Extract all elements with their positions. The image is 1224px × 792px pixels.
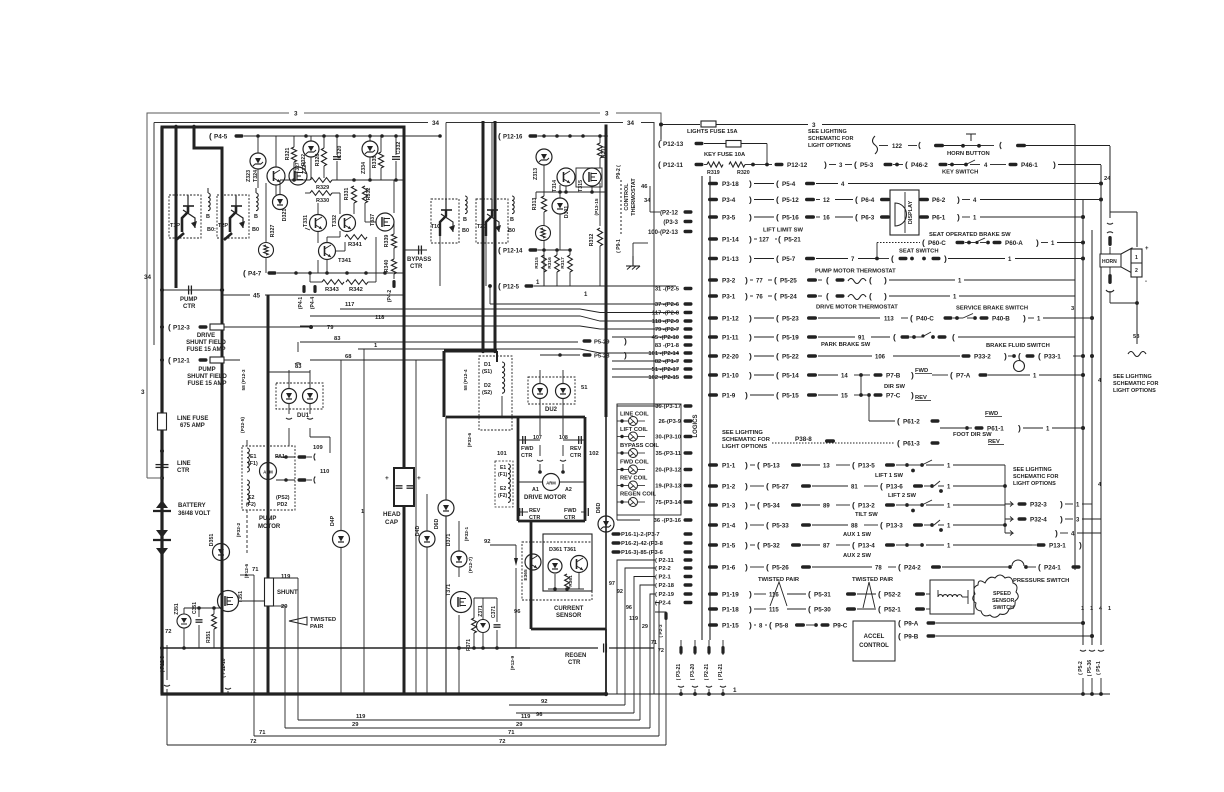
svg-text:P61-3: P61-3 (903, 441, 920, 448)
svg-text:115: 115 (769, 608, 779, 614)
svg-text:SENSOR: SENSOR (992, 598, 1015, 604)
svg-text:P24-1: P24-1 (1044, 565, 1061, 572)
svg-text:P5-28: P5-28 (594, 354, 610, 360)
svg-text:): ) (957, 194, 960, 204)
svg-text:P40-B: P40-B (992, 316, 1010, 323)
svg-text:P5-21: P5-21 (784, 237, 801, 244)
svg-text:P9-2 (: P9-2 ( (616, 165, 622, 179)
svg-text:(: ( (774, 275, 777, 285)
svg-text:P13-2: P13-2 (858, 503, 875, 510)
svg-text:C371: C371 (491, 606, 497, 618)
svg-text:PD2: PD2 (277, 502, 287, 508)
svg-text:P5-33: P5-33 (772, 523, 789, 530)
svg-text:37 -(P2-6: 37 -(P2-6 (655, 302, 680, 308)
svg-text:P13-5: P13-5 (858, 463, 875, 470)
svg-text:REGEN COIL: REGEN COIL (620, 492, 657, 498)
svg-text:(: ( (1038, 562, 1041, 572)
svg-text:P1-10: P1-10 (722, 373, 739, 380)
svg-text:): ) (911, 370, 914, 380)
svg-text:(: ( (905, 159, 908, 169)
svg-text:( P9-1: ( P9-1 (616, 239, 622, 253)
svg-text:P60-A: P60-A (1005, 240, 1023, 247)
svg-text:1: 1 (1090, 606, 1093, 612)
svg-text:(F1): (F1) (498, 472, 508, 478)
svg-text:Z313: Z313 (533, 168, 539, 180)
svg-text:P1-15: P1-15 (722, 623, 739, 630)
svg-text:E2: E2 (500, 486, 506, 492)
svg-text:): ) (749, 178, 752, 188)
svg-text:HORN: HORN (1102, 259, 1117, 265)
svg-text:R335: R335 (372, 156, 378, 169)
svg-text:P1-4: P1-4 (722, 523, 736, 530)
svg-text:119: 119 (521, 714, 531, 720)
svg-text:(P12-7): (P12-7) (468, 557, 474, 573)
svg-text:(: ( (897, 438, 900, 448)
svg-text:(: ( (808, 604, 811, 614)
svg-text:PUMP MOTOR THERMOSTAT: PUMP MOTOR THERMOSTAT (815, 269, 896, 275)
svg-text:106: 106 (875, 355, 886, 361)
svg-text:R331: R331 (344, 188, 350, 201)
svg-text:P5-25: P5-25 (780, 278, 797, 285)
svg-text:): ) (884, 291, 887, 301)
svg-text:P9-A: P9-A (904, 621, 919, 628)
svg-text:C320: C320 (337, 146, 343, 159)
svg-text:51 -(P2-17: 51 -(P2-17 (652, 367, 679, 373)
svg-text:R343: R343 (325, 287, 340, 293)
svg-text:3: 3 (141, 389, 145, 396)
svg-text:119: 119 (629, 616, 638, 622)
svg-text:P6-1: P6-1 (932, 215, 946, 222)
svg-text:P52-1: P52-1 (884, 607, 901, 614)
svg-text:(: ( (776, 313, 779, 323)
svg-text:P12-16: P12-16 (503, 135, 523, 141)
svg-text:P3-1: P3-1 (722, 294, 736, 301)
svg-text:B: B (254, 214, 258, 220)
svg-text:24: 24 (1104, 176, 1111, 182)
svg-text:PUMP: PUMP (198, 367, 215, 373)
svg-text:39-(P3-17: 39-(P3-17 (655, 404, 681, 410)
svg-text:): ) (1060, 514, 1063, 524)
svg-text:(: ( (869, 291, 872, 301)
svg-text:P24-2: P24-2 (904, 565, 921, 572)
svg-text:119: 119 (281, 574, 291, 580)
svg-text:(: ( (826, 291, 829, 301)
svg-text:REV: REV (570, 446, 582, 452)
svg-text:): ) (749, 194, 752, 204)
svg-text:72: 72 (165, 629, 171, 635)
svg-text:P61-1: P61-1 (987, 426, 1004, 433)
svg-text:CTR: CTR (183, 304, 196, 310)
svg-text:): ) (957, 212, 960, 222)
svg-text:R320: R320 (737, 170, 750, 176)
svg-text:79: 79 (327, 325, 334, 331)
svg-text:(P12-9: (P12-9 (510, 655, 516, 670)
svg-text:BYPASS: BYPASS (407, 257, 431, 263)
svg-text:LOGICS: LOGICS (693, 414, 699, 437)
svg-text:D321: D321 (282, 209, 288, 222)
svg-text:(P4-4: (P4-4 (310, 297, 316, 309)
svg-text:): ) (1018, 423, 1021, 433)
svg-text:R328: R328 (315, 154, 321, 167)
svg-text:117: 117 (345, 302, 354, 308)
svg-text:THERMOSTAT: THERMOSTAT (631, 178, 637, 216)
svg-text:P32-4: P32-4 (1030, 517, 1047, 524)
svg-text:96: 96 (514, 609, 521, 615)
svg-text:34: 34 (432, 120, 440, 127)
svg-text:P12-11: P12-11 (663, 162, 683, 169)
svg-text:): ) (1079, 540, 1082, 550)
svg-text:( P2-1: ( P2-1 (655, 575, 672, 581)
svg-text:( P3-20: ( P3-20 (690, 664, 696, 681)
svg-text:R316: R316 (547, 257, 553, 269)
svg-text:P46-2: P46-2 (911, 162, 928, 169)
svg-text:( P2-4: ( P2-4 (655, 601, 672, 607)
svg-text:+: + (417, 475, 421, 482)
svg-text:R351: R351 (206, 631, 212, 643)
svg-text:CAP: CAP (385, 519, 398, 526)
svg-text:(: ( (776, 332, 779, 342)
svg-text:101 -(P2-14: 101 -(P2-14 (648, 351, 679, 357)
svg-text:P13-4: P13-4 (858, 543, 875, 550)
svg-text:D6D: D6D (596, 503, 602, 514)
svg-text:CTR: CTR (564, 515, 575, 521)
svg-text:30-(P3-10: 30-(P3-10 (655, 435, 681, 441)
svg-text:R319: R319 (707, 170, 720, 176)
svg-text:1: 1 (733, 687, 737, 694)
svg-text:TILT SW: TILT SW (855, 512, 878, 518)
svg-text:PARK BRAKE SW: PARK BRAKE SW (821, 342, 871, 348)
svg-text:FWD: FWD (564, 508, 577, 514)
svg-text:CTR: CTR (570, 453, 581, 459)
svg-text:P9-C: P9-C (833, 623, 848, 630)
svg-text:): ) (745, 460, 748, 470)
svg-text:(: ( (1038, 351, 1041, 361)
svg-text:P1-3: P1-3 (722, 503, 736, 510)
svg-text:(P32-5): (P32-5) (240, 417, 246, 433)
svg-text:( P5-1: ( P5-1 (1096, 661, 1102, 675)
svg-text:P13-3: P13-3 (886, 523, 903, 530)
svg-text:45 -(P2-10: 45 -(P2-10 (652, 335, 679, 341)
svg-text:92: 92 (617, 589, 623, 595)
svg-text:CTR: CTR (521, 453, 532, 459)
svg-text:MOTOR: MOTOR (258, 524, 281, 530)
svg-text:(: ( (852, 460, 855, 470)
svg-text:(: ( (776, 253, 779, 263)
svg-text:): ) (911, 390, 914, 400)
svg-text:E365: E365 (523, 569, 529, 581)
svg-text:R313: R313 (532, 198, 538, 211)
svg-text:B0: B0 (462, 228, 469, 234)
svg-text:P3-18: P3-18 (722, 181, 739, 188)
svg-text:R317: R317 (560, 257, 566, 269)
svg-text:(: ( (878, 604, 881, 614)
svg-text:113: 113 (884, 317, 894, 323)
svg-text:LIFT 2 SW: LIFT 2 SW (888, 493, 917, 499)
svg-text:71: 71 (508, 730, 515, 736)
svg-text:B: B (510, 217, 514, 223)
svg-text:(: ( (808, 589, 811, 599)
svg-text:3: 3 (605, 111, 609, 118)
svg-text:B0:: B0: (207, 227, 216, 233)
svg-text:(F2): (F2) (246, 502, 256, 508)
svg-text:92: 92 (484, 539, 490, 545)
svg-text:B: B (206, 214, 210, 220)
svg-text:R332: R332 (366, 188, 372, 201)
svg-text:117 -(P2-8: 117 -(P2-8 (652, 311, 680, 317)
svg-text:): ) (749, 332, 752, 342)
svg-text:101: 101 (497, 451, 507, 457)
svg-text:P12-1: P12-1 (173, 358, 190, 365)
svg-text:C332: C332 (396, 142, 402, 155)
svg-text:SERVICE BRAKE SWITCH: SERVICE BRAKE SWITCH (956, 306, 1028, 312)
svg-text:HEAD: HEAD (383, 511, 401, 518)
svg-text:(: ( (898, 618, 901, 628)
svg-text:(P32-2: (P32-2 (236, 522, 242, 537)
svg-text:FUSE 15 AMP: FUSE 15 AMP (186, 347, 225, 353)
svg-text:14: 14 (841, 374, 848, 380)
svg-text:(: ( (757, 500, 760, 510)
svg-text:P5-24: P5-24 (780, 294, 797, 301)
svg-text:88: 88 (851, 524, 858, 530)
svg-text:A2: A2 (565, 487, 572, 493)
svg-text:(: ( (922, 237, 925, 247)
svg-text:+: + (385, 475, 389, 482)
svg-text:R340: R340 (384, 260, 390, 273)
svg-text:): ) (749, 370, 752, 380)
svg-text:(: ( (243, 268, 246, 278)
svg-text:P40-C: P40-C (916, 316, 934, 323)
svg-text:3: 3 (812, 122, 816, 129)
svg-text:46: 46 (641, 184, 648, 190)
svg-text:P1-12: P1-12 (722, 316, 739, 323)
svg-text:P1-2: P1-2 (722, 484, 736, 491)
svg-text:Z351: Z351 (174, 603, 180, 615)
svg-text:LIGHT OPTIONS: LIGHT OPTIONS (1113, 388, 1156, 394)
svg-text:31 -(P2-5: 31 -(P2-5 (655, 287, 680, 293)
svg-text:(: ( (880, 481, 883, 491)
svg-text:E1: E1 (500, 465, 506, 471)
svg-text:( P12-8: ( P12-8 (160, 656, 166, 673)
svg-text:P33-2: P33-2 (974, 354, 991, 361)
svg-text:SCHEMATIC FOR: SCHEMATIC FOR (808, 136, 853, 142)
svg-text:AUX 1 SW: AUX 1 SW (843, 532, 872, 538)
svg-text:26-(P3-9: 26-(P3-9 (658, 419, 681, 425)
svg-text:100-(P2-13: 100-(P2-13 (648, 230, 679, 236)
svg-text:ARM: ARM (263, 470, 273, 475)
svg-text:P1-13: P1-13 (722, 256, 739, 263)
svg-text:(P4-2: (P4-2 (387, 290, 393, 302)
svg-text:118 -(P2-9: 118 -(P2-9 (652, 319, 680, 325)
svg-text:127: 127 (759, 238, 770, 244)
svg-text:R327: R327 (270, 225, 276, 238)
svg-text:(P13-15: (P13-15 (594, 198, 600, 215)
svg-text:( P3-21: ( P3-21 (676, 664, 682, 681)
svg-text:SEE LIGHTING: SEE LIGHTING (1013, 467, 1052, 473)
svg-text:P38-8: P38-8 (795, 436, 812, 443)
svg-text:T314: T314 (552, 180, 558, 192)
svg-text:T1P: T1P (170, 223, 180, 229)
svg-text:36/48 VOLT: 36/48 VOLT (178, 511, 211, 517)
svg-text:): ) (824, 159, 827, 169)
svg-text:13: 13 (823, 464, 830, 470)
svg-text:(: ( (498, 281, 501, 291)
svg-text:29: 29 (352, 722, 359, 728)
svg-text:): ) (745, 481, 748, 491)
svg-text:): ) (749, 604, 752, 614)
svg-text:): ) (749, 234, 752, 244)
svg-text:LIGHT OPTIONS: LIGHT OPTIONS (1013, 481, 1056, 487)
svg-text:): ) (624, 350, 627, 360)
svg-text:D2: D2 (484, 383, 491, 389)
svg-text:( P2-18: ( P2-18 (655, 583, 675, 589)
svg-text:LIGHT OPTIONS: LIGHT OPTIONS (808, 143, 851, 149)
svg-text:SCHEMATIC FOR: SCHEMATIC FOR (722, 437, 771, 443)
svg-text:D361 T361: D361 T361 (549, 547, 576, 553)
svg-text:(: ( (778, 234, 781, 244)
svg-text:AUX 2 SW: AUX 2 SW (843, 553, 872, 559)
svg-text:96: 96 (536, 712, 543, 718)
svg-text:107: 107 (533, 435, 542, 441)
svg-text:P5-30: P5-30 (814, 607, 831, 614)
svg-text:1: 1 (1108, 606, 1111, 612)
svg-text:P6-2: P6-2 (932, 197, 946, 204)
svg-text:(: ( (766, 562, 769, 572)
svg-text:B: B (463, 217, 467, 223)
svg-text:DRIVE MOTOR: DRIVE MOTOR (524, 495, 567, 501)
svg-text:CURRENT: CURRENT (554, 606, 584, 612)
svg-text:): ) (884, 275, 887, 285)
svg-text:SPEED: SPEED (993, 591, 1011, 597)
svg-text:): ) (749, 253, 752, 263)
svg-text:19-(P3-13: 19-(P3-13 (655, 484, 682, 490)
svg-text:102 -(P2-15: 102 -(P2-15 (648, 375, 679, 381)
svg-text:T331: T331 (303, 215, 309, 227)
svg-text:PUMP: PUMP (180, 297, 197, 303)
svg-text:): ) (745, 390, 748, 400)
svg-text:(P3-3: (P3-3 (663, 220, 678, 226)
svg-text:P5-7: P5-7 (782, 256, 796, 263)
svg-text:72: 72 (658, 648, 664, 654)
svg-text:P1-19: P1-19 (722, 592, 739, 599)
svg-text:): ) (1055, 528, 1058, 538)
svg-text:P33-1: P33-1 (1044, 354, 1061, 361)
svg-text:P3-4: P3-4 (722, 197, 736, 204)
svg-text:CTR: CTR (177, 468, 190, 474)
svg-text:( P2-3: ( P2-3 (658, 624, 664, 637)
svg-text:P13-6: P13-6 (886, 484, 903, 491)
svg-text:( P5-36: ( P5-36 (1087, 660, 1093, 677)
svg-text:LINE FUSE: LINE FUSE (177, 416, 208, 422)
svg-text:(: ( (1018, 351, 1021, 361)
svg-text:(: ( (898, 631, 901, 641)
svg-text:(: ( (910, 313, 913, 323)
svg-text:P12-12: P12-12 (787, 162, 808, 169)
svg-text:71: 71 (651, 640, 657, 646)
svg-text:P5-19: P5-19 (782, 335, 799, 342)
svg-text:P1-18: P1-18 (722, 607, 739, 614)
svg-text:P16-1)-2-(P3-7: P16-1)-2-(P3-7 (621, 532, 660, 538)
svg-text:75-(P3-14: 75-(P3-14 (655, 500, 682, 506)
svg-text:CTR: CTR (568, 660, 581, 666)
svg-text:P5-16: P5-16 (782, 215, 799, 222)
svg-text:1: 1 (1135, 255, 1138, 261)
svg-text:CONTROL: CONTROL (624, 183, 630, 211)
svg-text:P1-5: P1-5 (722, 543, 736, 550)
svg-text:R311: R311 (601, 146, 607, 158)
svg-text:68: 68 (345, 354, 352, 360)
svg-text:HORN BUTTON: HORN BUTTON (947, 151, 990, 157)
svg-text:( P2-2: ( P2-2 (655, 566, 671, 572)
svg-text:SEE LIGHTING: SEE LIGHTING (722, 430, 763, 436)
svg-text:P1-14: P1-14 (722, 237, 739, 244)
svg-text:58 (P12-4: 58 (P12-4 (463, 369, 469, 390)
svg-text:SHUNT FIELD: SHUNT FIELD (186, 340, 226, 346)
svg-text:(P4-1: (P4-1 (298, 297, 304, 309)
svg-text:REV: REV (529, 508, 541, 514)
svg-text:(: ( (776, 212, 779, 222)
svg-text:81: 81 (851, 485, 858, 491)
svg-text:102: 102 (589, 451, 599, 457)
svg-text:E1: E1 (250, 454, 257, 460)
svg-text:108: 108 (559, 435, 568, 441)
svg-text:SCHEMATIC FOR: SCHEMATIC FOR (1013, 474, 1058, 480)
svg-text:(S1): (S1) (482, 369, 492, 375)
svg-text:P12-5: P12-5 (503, 285, 520, 291)
svg-text:R371: R371 (466, 639, 472, 651)
svg-text:A1: A1 (532, 487, 539, 493)
svg-text:51: 51 (581, 385, 588, 391)
svg-text:(: ( (168, 322, 171, 332)
svg-text:76: 76 (756, 295, 763, 301)
svg-text:(: ( (776, 370, 779, 380)
svg-text:PAIR: PAIR (310, 624, 324, 630)
svg-text:(PS2): (PS2) (276, 495, 290, 501)
svg-text:(: ( (898, 562, 901, 572)
svg-text:CONTROL: CONTROL (859, 643, 889, 649)
svg-text:R341: R341 (348, 242, 363, 248)
svg-text:): ) (745, 275, 748, 285)
svg-text:71: 71 (259, 730, 266, 736)
svg-text:PRESSURE SWITCH: PRESSURE SWITCH (1013, 578, 1069, 584)
svg-text:SEAT SWITCH: SEAT SWITCH (899, 249, 939, 255)
svg-text:(: ( (880, 520, 883, 530)
svg-text:(: ( (498, 131, 501, 141)
svg-text:): ) (1023, 313, 1026, 323)
svg-text:(: ( (769, 620, 772, 630)
svg-text:): ) (745, 520, 748, 530)
svg-text:119: 119 (356, 714, 366, 720)
svg-text:D4P: D4P (330, 515, 336, 526)
svg-text:SENSOR: SENSOR (556, 613, 582, 619)
svg-text:45: 45 (253, 293, 261, 300)
svg-text:): ) (1060, 499, 1063, 509)
svg-text:(: ( (854, 159, 857, 169)
svg-text:(: ( (757, 540, 760, 550)
svg-text:P32-3: P32-3 (1030, 502, 1047, 509)
svg-text:P52-2: P52-2 (884, 592, 901, 599)
svg-text:72: 72 (250, 739, 256, 745)
svg-text:ACCEL: ACCEL (864, 634, 885, 640)
svg-text:PUMP: PUMP (259, 516, 276, 522)
svg-text:( P1-21: ( P1-21 (718, 664, 724, 681)
svg-text:P5-29: P5-29 (594, 340, 610, 346)
svg-text:(: ( (878, 589, 881, 599)
svg-text:R315: R315 (534, 257, 540, 269)
svg-text:83: 83 (334, 336, 341, 342)
svg-text:(P12-6: (P12-6 (244, 563, 250, 578)
svg-text:P1-6: P1-6 (722, 565, 736, 572)
svg-text:P5-3: P5-3 (860, 162, 874, 169)
